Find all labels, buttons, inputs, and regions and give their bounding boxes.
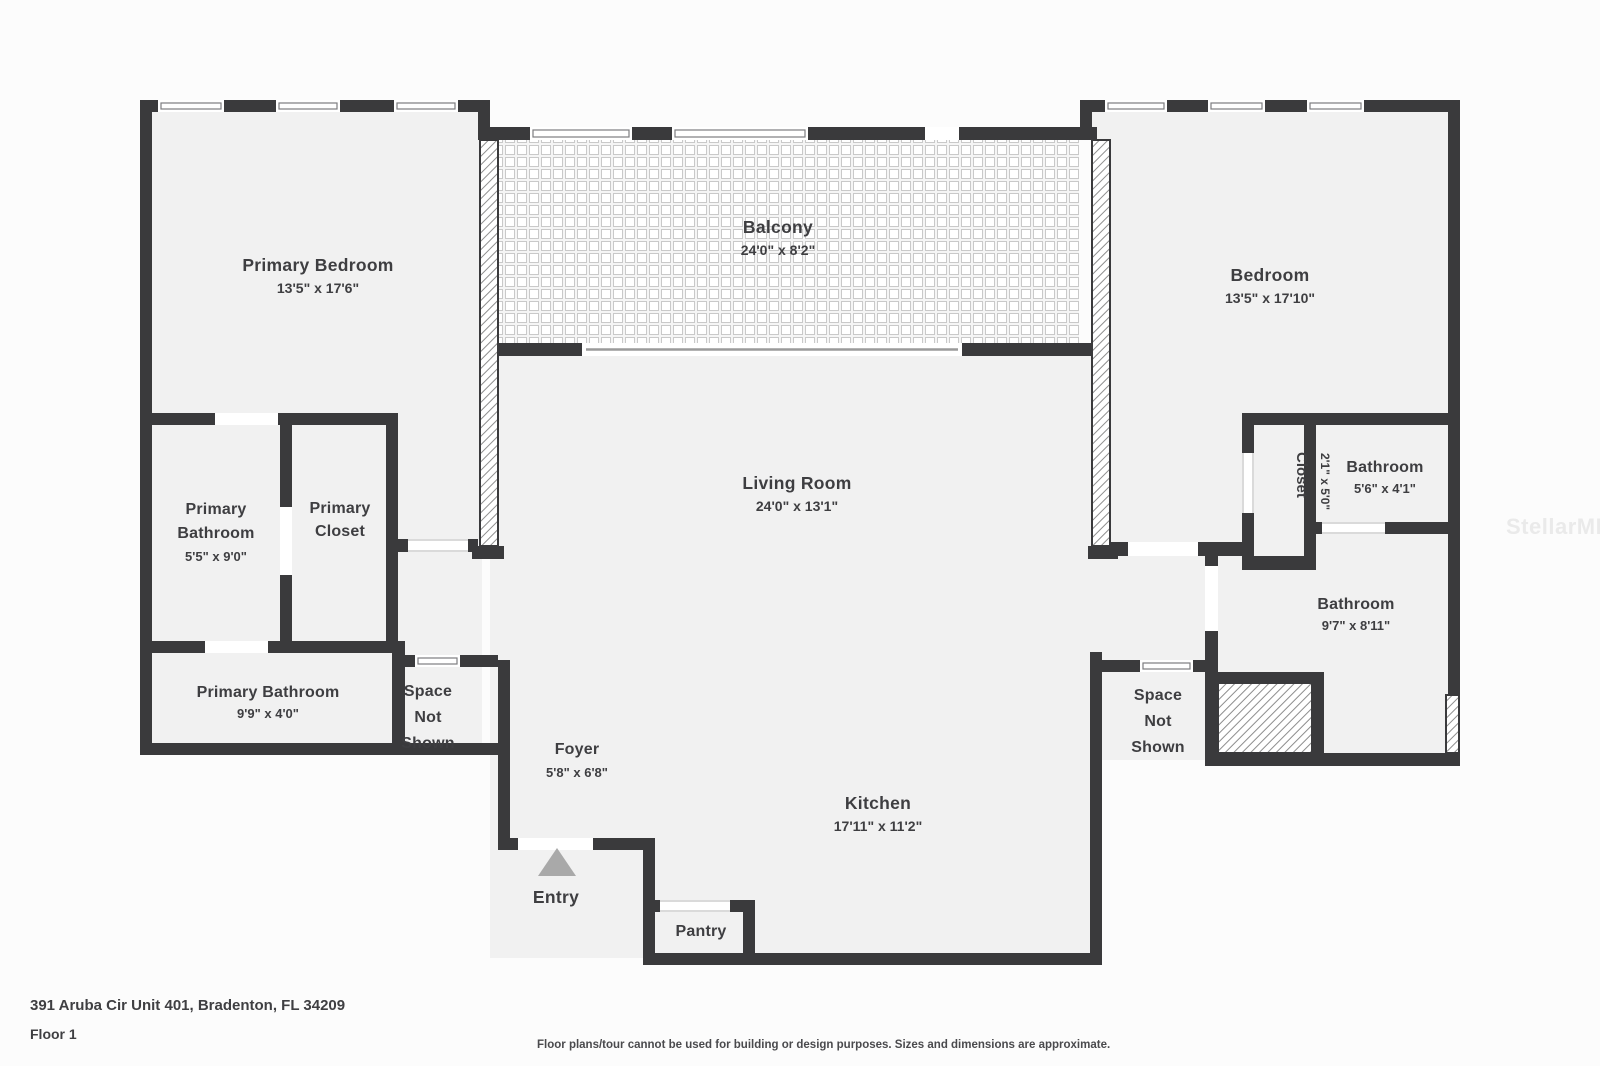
- label-sns-right-2: Not: [1144, 713, 1172, 730]
- door-gap: [280, 507, 292, 575]
- label-primary-closet-1: Primary: [310, 500, 371, 517]
- label-bathroom-large: Bathroom: [1317, 596, 1394, 613]
- label-foyer-dims: 5'8" x 6'8": [546, 765, 608, 780]
- window: [158, 100, 224, 112]
- label-sns-right-3: Shown: [1131, 739, 1184, 756]
- label-pantry: Pantry: [676, 923, 727, 940]
- label-primary-bathroom2-dims: 9'9" x 4'0": [237, 706, 299, 721]
- door-gap: [408, 539, 468, 552]
- label-primary-bedroom: Primary Bedroom: [242, 255, 393, 275]
- label-primary-closet-2: Closet: [315, 523, 366, 540]
- room-center-living-kitchen: [490, 348, 1100, 958]
- label-primary-bedroom-dims: 13'5" x 17'6": [277, 280, 359, 296]
- floor-label: Floor 1: [30, 1026, 77, 1042]
- door-gap: [205, 641, 268, 653]
- label-bathroom-small: Bathroom: [1346, 459, 1423, 476]
- label-foyer: Foyer: [555, 741, 600, 758]
- label-sns-right-1: Space: [1134, 687, 1182, 704]
- window: [1307, 100, 1364, 112]
- window: [530, 127, 632, 140]
- balcony-glass-wall-right: [1092, 140, 1110, 546]
- floor-plan-drawing: Primary Bedroom 13'5" x 17'6" Balcony 24…: [0, 0, 1600, 1066]
- label-closet-dims: 2'1" x 5'0": [1318, 453, 1332, 510]
- label-sns-left-1: Space: [404, 683, 452, 700]
- floor-plan-page: { "watermark": "StellarMLS", "rooms": { …: [0, 0, 1600, 1066]
- window: [672, 127, 808, 140]
- door-gap: [1322, 522, 1385, 534]
- label-living-room: Living Room: [742, 473, 851, 493]
- label-balcony-dims: 24'0" x 8'2": [741, 242, 815, 258]
- label-bedroom-dims: 13'5" x 17'10": [1225, 290, 1315, 306]
- label-closet: Closet: [1293, 452, 1310, 498]
- door-gap: [1205, 566, 1218, 631]
- void-hatch-square: [1218, 683, 1312, 753]
- balcony-glass-wall-left: [480, 140, 498, 546]
- label-balcony: Balcony: [743, 217, 813, 237]
- window: [1208, 100, 1265, 112]
- door-gap: [1242, 453, 1254, 513]
- door-gap: [518, 838, 593, 850]
- door-gap: [215, 413, 278, 425]
- label-bedroom: Bedroom: [1231, 265, 1310, 285]
- door-gap: [1128, 542, 1198, 556]
- sliding-door: [582, 343, 962, 356]
- disclaimer-text: Floor plans/tour cannot be used for buil…: [537, 1039, 1110, 1051]
- label-kitchen-dims: 17'11" x 11'2": [834, 818, 922, 834]
- label-kitchen: Kitchen: [845, 793, 911, 813]
- label-primary-bathroom-1: Primary: [186, 501, 247, 518]
- label-bathroom-small-dims: 5'6" x 4'1": [1354, 481, 1416, 496]
- window: [276, 100, 340, 112]
- label-primary-bathroom2: Primary Bathroom: [197, 684, 340, 701]
- label-living-room-dims: 24'0" x 13'1": [756, 498, 838, 514]
- label-primary-bathroom-2: Bathroom: [177, 525, 254, 542]
- label-bathroom-large-dims: 9'7" x 8'11": [1322, 618, 1390, 633]
- label-primary-bathroom-dims: 5'5" x 9'0": [185, 549, 247, 564]
- window: [1105, 100, 1167, 112]
- label-sns-left-2: Not: [414, 709, 442, 726]
- balcony-opening: [925, 127, 959, 140]
- label-entry: Entry: [533, 887, 579, 907]
- door-gap: [660, 900, 730, 912]
- stellar-mls-watermark: StellarMLS: [1506, 514, 1600, 540]
- label-sns-left-3: Shown: [401, 735, 454, 752]
- right-wall-glass-strip: [1446, 695, 1459, 753]
- window: [415, 655, 460, 667]
- window: [1140, 660, 1193, 672]
- window: [394, 100, 458, 112]
- address-text: 391 Aruba Cir Unit 401, Bradenton, FL 34…: [30, 997, 345, 1014]
